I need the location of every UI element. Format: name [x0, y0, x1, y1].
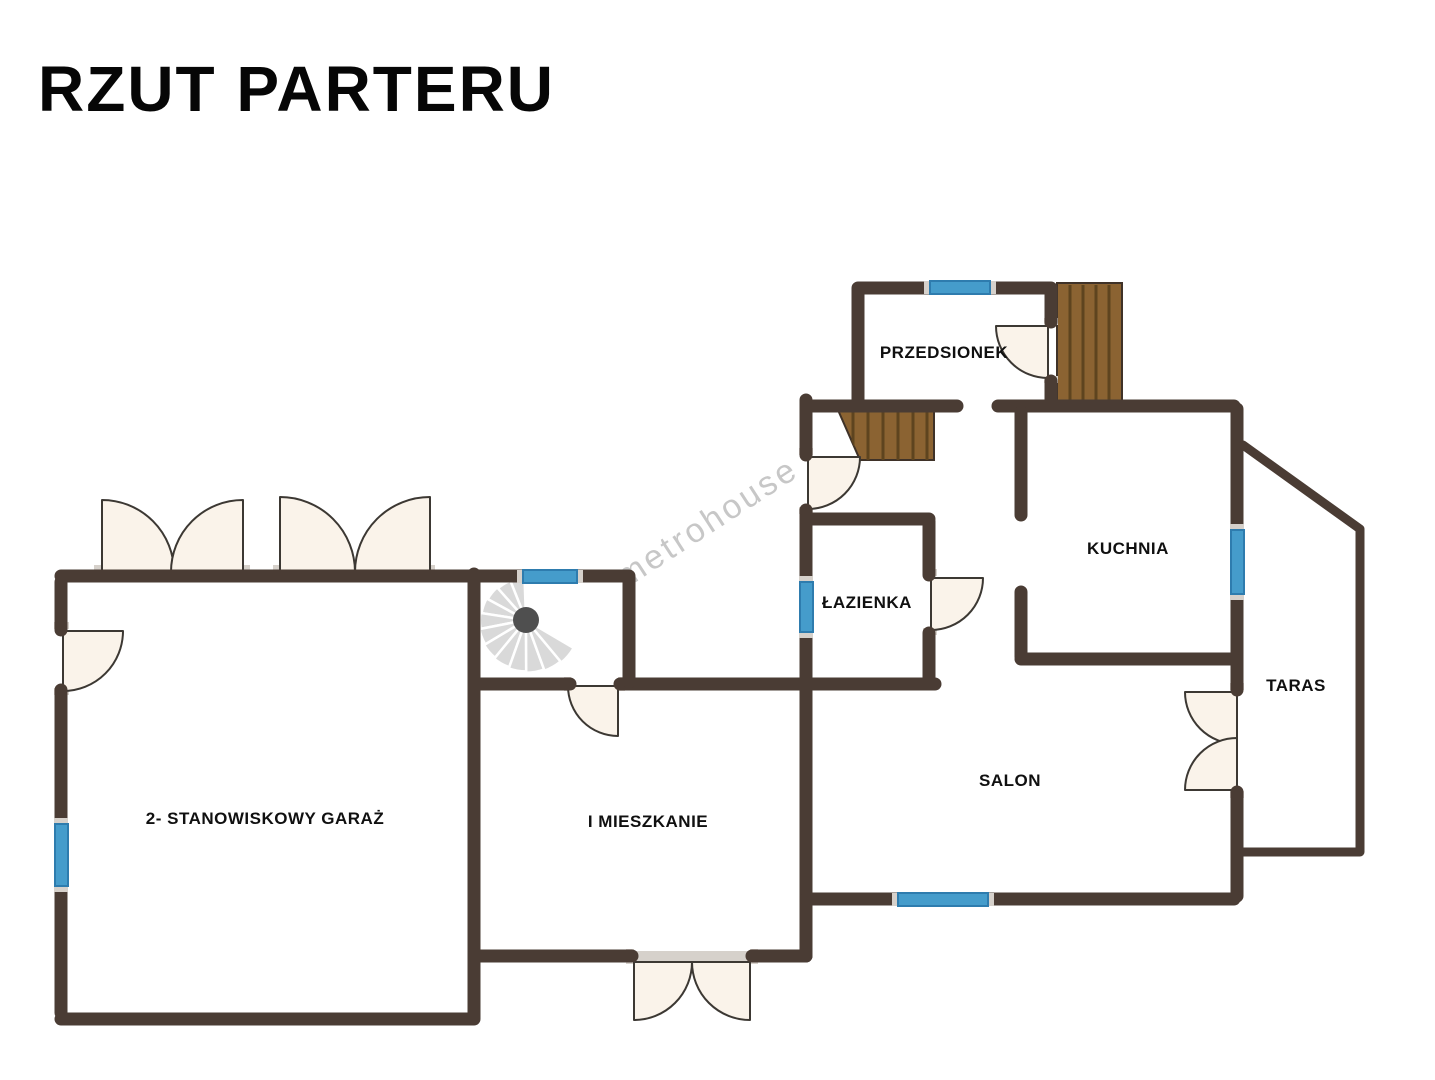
- window-stair-room: [523, 570, 577, 583]
- watermark-text: metrohouse: [609, 450, 805, 596]
- room-label-lazienka: ŁAZIENKA: [822, 593, 912, 612]
- hall-side-door: [808, 457, 860, 509]
- room-label-przedsionek: PRZEDSIONEK: [880, 343, 1009, 362]
- wood-deck: [1057, 283, 1122, 402]
- room-labels: PRZEDSIONEK ŁAZIENKA KUCHNIA TARAS SALON…: [146, 343, 1326, 831]
- room-label-mieszkanie: I MIESZKANIE: [588, 812, 708, 831]
- spiral-stair-center-post: [513, 607, 539, 633]
- salon-terrace-door-bottom: [1185, 738, 1237, 790]
- walls: [61, 288, 1360, 1019]
- floor-plan-page: RZUT PARTERU metrohouse: [0, 0, 1435, 1080]
- window-przedsionek: [930, 281, 990, 294]
- doors: [63, 326, 1237, 1020]
- wall-terrace: [1243, 445, 1360, 852]
- room-label-salon: SALON: [979, 771, 1041, 790]
- salon-terrace-door-top: [1185, 692, 1237, 744]
- stair-room-door: [568, 686, 618, 736]
- lazienka-door: [931, 578, 983, 630]
- garage-door-2-left: [280, 497, 355, 572]
- floor-plan-drawing: metrohouse: [0, 0, 1435, 1080]
- window-bathroom: [800, 582, 813, 632]
- garage-side-door: [63, 631, 123, 691]
- garage-door-2-right: [355, 497, 430, 572]
- room-label-kuchnia: KUCHNIA: [1087, 539, 1169, 558]
- entrance-door-right: [692, 962, 750, 1020]
- wall-kitchen: [1021, 412, 1234, 659]
- window-kitchen: [1231, 530, 1244, 594]
- garage-door-1-right: [171, 500, 243, 572]
- garage-door-1-left: [102, 500, 174, 572]
- window-salon: [898, 893, 988, 906]
- window-garage: [55, 824, 68, 886]
- room-label-garaz: 2- STANOWISKOWY GARAŻ: [146, 809, 384, 828]
- spiral-staircase: [479, 579, 573, 673]
- interior-stairs: [838, 408, 934, 462]
- door-frames: [54, 318, 1244, 964]
- room-label-taras: TARAS: [1266, 676, 1326, 695]
- entrance-door-left: [634, 962, 692, 1020]
